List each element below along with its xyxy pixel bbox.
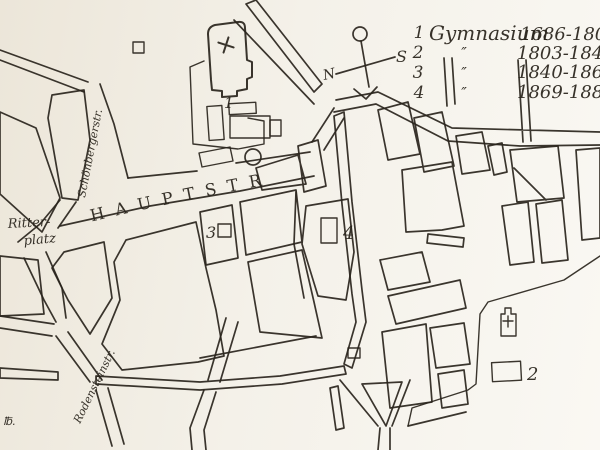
legend-row-3-number: 3 (413, 63, 424, 83)
town-map-canvas: N S 1 Gymnasium 1686-1803 2 ″ 1803-1840 … (0, 0, 600, 450)
school-annex-wing (270, 120, 281, 136)
legend-row-2-years: 1803-1840 (517, 43, 600, 64)
map-legend: 1 Gymnasium 1686-1803 2 ″ 1803-1840 3 ″ … (412, 21, 600, 103)
gymnasium-site-3-building (218, 224, 231, 237)
small-north-building (133, 42, 144, 53)
church-cross-icon (216, 35, 236, 55)
wall-band-south-stub (330, 386, 344, 430)
gymnasium-site-4-building (321, 218, 337, 243)
legend-row-4-number: 4 (413, 83, 425, 103)
legend-row-3-years: 1840-1869 (517, 62, 600, 83)
ritterplatz-label-line2: platz (23, 231, 57, 249)
church-quarter (133, 22, 281, 167)
legend-row-1-years: 1686-1803 (520, 24, 600, 45)
legend-row-3-ditto: ″ (461, 64, 467, 82)
hauptstrasse-label: HAUPTSTR (88, 169, 274, 226)
rodensteinstrasse-label: Rodensteinstr. (71, 347, 118, 426)
blocks-southeast (380, 252, 470, 408)
market-fountain (245, 149, 261, 165)
chapel-cross-icon (503, 316, 513, 327)
marker-4-label: 4 (342, 223, 354, 244)
legend-row-4-ditto: ″ (461, 84, 467, 102)
legend-row-2-number: 2 (412, 43, 424, 63)
yard-building (207, 105, 224, 140)
blocks-northeast (378, 102, 600, 265)
street-lines-northwest (0, 50, 128, 446)
street-lines-south (190, 318, 466, 450)
wall-band-diagonal (246, 0, 322, 92)
gymnasium-sites (218, 218, 522, 382)
marker-2-label: 2 (526, 364, 538, 385)
town-wall (0, 0, 366, 430)
schoenbergerstrasse-label: Schönbergerstr. (75, 108, 105, 199)
church-building (208, 22, 252, 97)
legend-row-1-number: 1 (414, 23, 425, 43)
hand-drawn-town-map: N S 1 Gymnasium 1686-1803 2 ″ 1803-1840 … (0, 0, 600, 450)
marker-3-label: 3 (206, 223, 216, 242)
market-building (199, 147, 233, 167)
wall-band-bottom-left (0, 368, 58, 380)
gymnasium-site-2-building (492, 361, 522, 381)
ritterplatz-label-line1: Ritter- (6, 215, 50, 232)
marker-1-label: 1 (224, 94, 234, 112)
town-boundary-line (408, 256, 600, 426)
compass-rose: N S (321, 27, 407, 99)
compass-north-label: N (321, 66, 338, 85)
legend-row-4-years: 1869-1882 (517, 82, 600, 103)
compass-south-label: S (396, 47, 407, 66)
legend-row-2-ditto: ″ (461, 44, 467, 62)
compass-circle-icon (353, 27, 367, 41)
signature-mark: ℔. (3, 415, 16, 428)
